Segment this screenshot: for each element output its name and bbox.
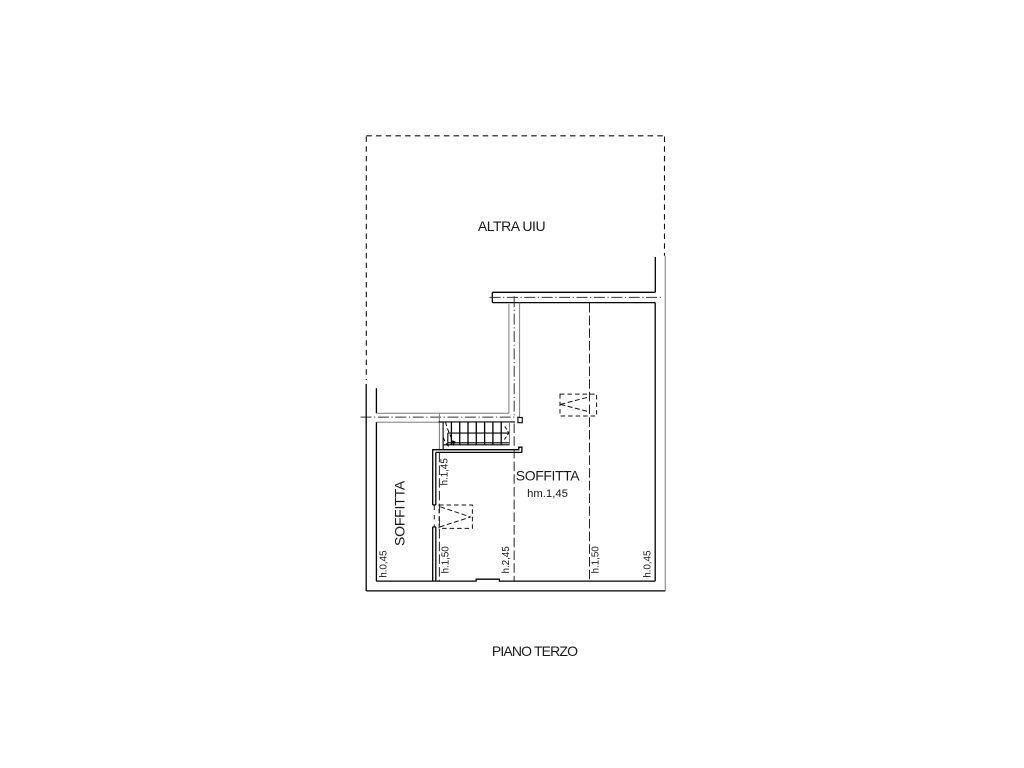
svg-text:SOFFITTA: SOFFITTA [392, 480, 408, 546]
svg-text:SOFFITTA: SOFFITTA [516, 468, 580, 484]
svg-text:PIANO TERZO: PIANO TERZO [492, 643, 578, 659]
svg-text:h.1,45: h.1,45 [440, 458, 451, 486]
svg-text:h.1,50: h.1,50 [591, 546, 602, 574]
svg-text:h.1,50: h.1,50 [441, 546, 452, 574]
svg-text:h.2,45: h.2,45 [501, 546, 512, 574]
svg-text:h.0,45: h.0,45 [379, 550, 390, 578]
svg-text:hm.1,45: hm.1,45 [527, 488, 568, 500]
svg-text:h.0,45: h.0,45 [643, 550, 654, 578]
svg-text:ALTRA UIU: ALTRA UIU [478, 218, 546, 234]
